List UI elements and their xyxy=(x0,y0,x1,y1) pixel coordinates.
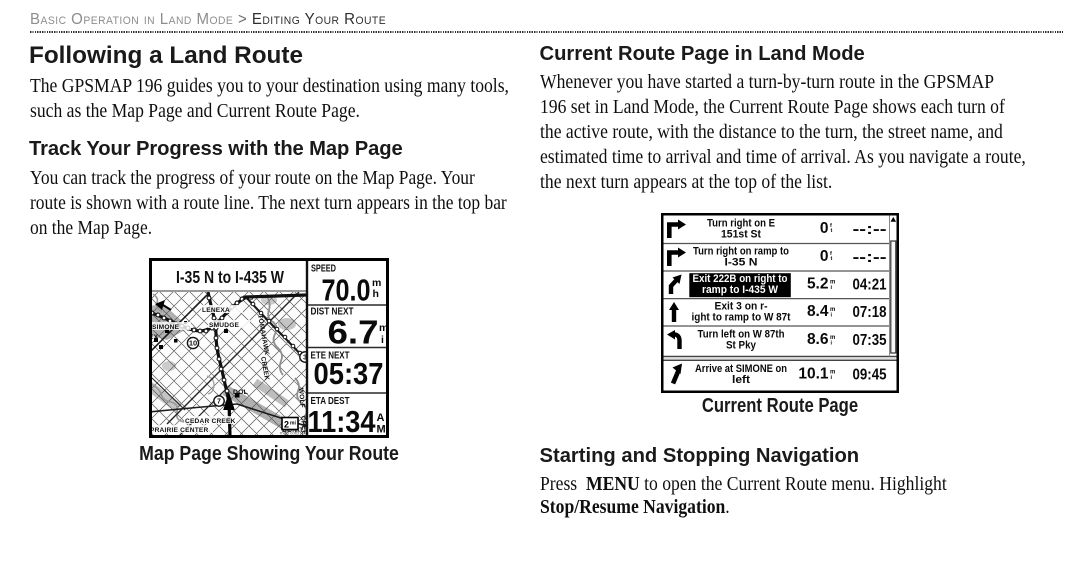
svg-text:M: M xyxy=(377,424,386,436)
svg-text:10.1: 10.1 xyxy=(798,366,829,383)
svg-text:04:21: 04:21 xyxy=(853,277,887,294)
svg-text:map cord: map cord xyxy=(280,431,299,436)
svg-text:t: t xyxy=(831,256,833,262)
svg-text:8.6: 8.6 xyxy=(807,331,829,348)
svg-text:t: t xyxy=(831,228,833,234)
svg-text:6.7: 6.7 xyxy=(328,314,379,351)
svg-text:--:--: --:-- xyxy=(853,221,887,238)
svg-text:8.4: 8.4 xyxy=(807,303,829,320)
svg-text:--:--: --:-- xyxy=(853,249,887,266)
svg-text:A: A xyxy=(377,412,385,424)
svg-text:11:34: 11:34 xyxy=(308,404,377,438)
svg-text:169: 169 xyxy=(242,295,254,302)
svg-text:left: left xyxy=(732,374,750,386)
svg-text:07:18: 07:18 xyxy=(853,304,887,321)
svg-text:0: 0 xyxy=(820,220,829,237)
svg-text:7: 7 xyxy=(217,399,221,406)
svg-text:i: i xyxy=(381,334,384,346)
svg-text:05:37: 05:37 xyxy=(314,356,384,391)
svg-text:ight to ramp to W 87t: ight to ramp to W 87t xyxy=(692,312,791,324)
svg-text:mi: mi xyxy=(290,421,296,427)
svg-text:St Pky: St Pky xyxy=(726,340,757,352)
svg-text:ramp to I-435 W: ramp to I-435 W xyxy=(702,284,779,296)
svg-text:70.0: 70.0 xyxy=(322,273,371,308)
svg-text:SMUDGE: SMUDGE xyxy=(209,322,240,329)
svg-text:h: h xyxy=(373,288,379,300)
svg-text:I-35 N: I-35 N xyxy=(725,257,758,269)
svg-text:2: 2 xyxy=(284,420,289,430)
svg-text:5.2: 5.2 xyxy=(807,276,829,293)
svg-text:07:35: 07:35 xyxy=(853,332,887,349)
svg-text:SIMONE: SIMONE xyxy=(152,324,180,331)
svg-text:DOL: DOL xyxy=(233,389,248,396)
svg-text:10: 10 xyxy=(189,339,197,348)
svg-text:0: 0 xyxy=(820,248,829,265)
svg-text:CEDAR CREEK: CEDAR CREEK xyxy=(185,418,236,425)
svg-text:I-35 N to I-435 W: I-35 N to I-435 W xyxy=(176,267,284,287)
svg-text:151st St: 151st St xyxy=(721,229,761,241)
svg-text:LENEXA: LENEXA xyxy=(202,307,230,314)
svg-text:PRAIRIE CENTER: PRAIRIE CENTER xyxy=(150,427,209,434)
svg-text:09:45: 09:45 xyxy=(853,367,887,384)
